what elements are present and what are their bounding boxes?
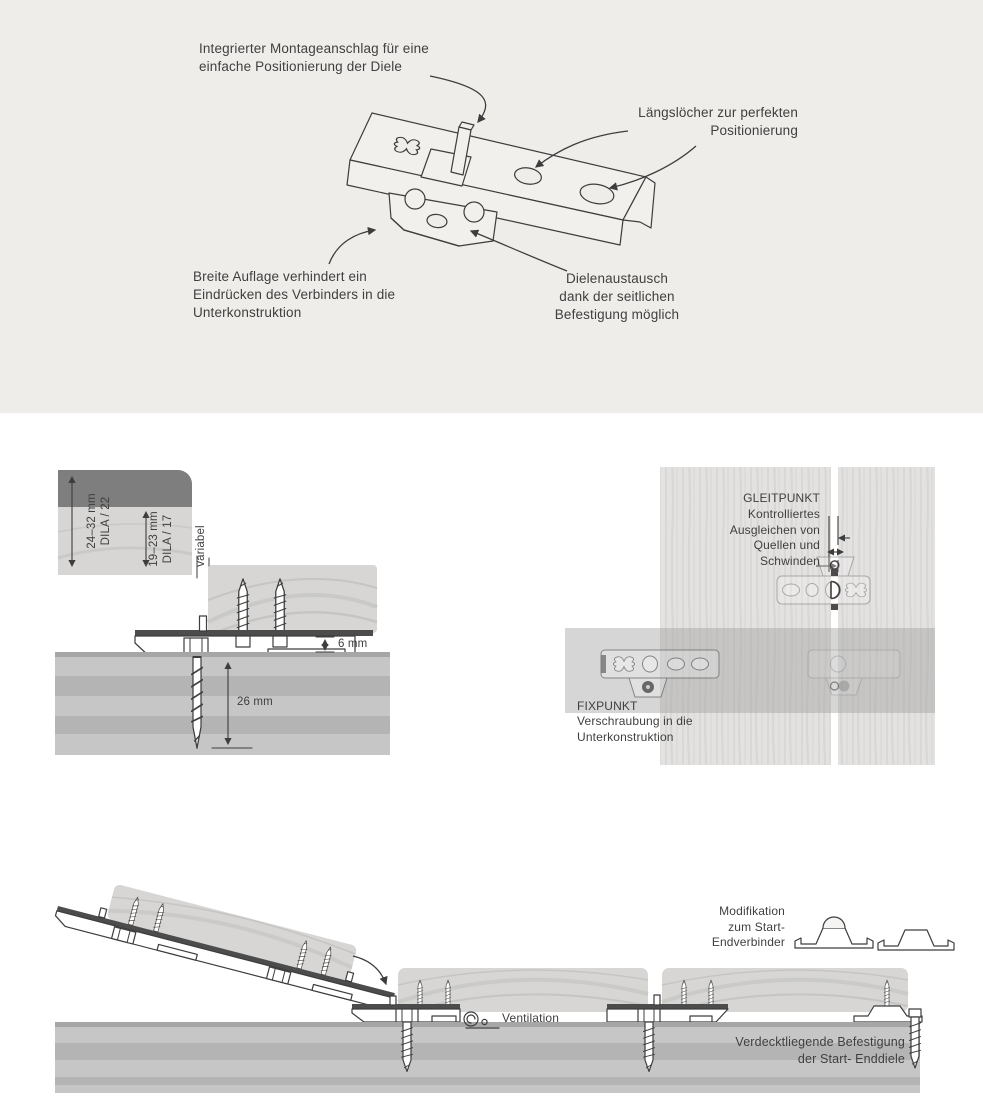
label-ventilation: Ventilation	[502, 1011, 559, 1027]
deck-board-section	[208, 565, 377, 633]
label-gleitpunkt-title: GLEITPUNKT	[640, 491, 820, 507]
tilted-board-assembly	[53, 871, 413, 1013]
stop-pin	[200, 616, 207, 631]
substructure	[55, 652, 390, 755]
board-thickness-block	[58, 470, 209, 592]
label-dielenaustausch: Dielenaustausch dank der seitlichen Befe…	[527, 270, 707, 323]
dimension-label-1: 24–32 mm DILA / 22	[86, 493, 114, 549]
label-variabel: variabel	[195, 525, 209, 566]
label-auflage: Breite Auflage verhindert ein Eindrücken…	[193, 268, 395, 321]
instruction-sheet: Integrierter Montageanschlag für eine ei…	[0, 0, 983, 1110]
profile-with-screw-head	[795, 928, 873, 948]
modification-profiles	[795, 917, 954, 950]
profile-plain	[878, 930, 954, 950]
label-montageanschlag: Integrierter Montageanschlag für eine ei…	[199, 40, 429, 76]
label-verdeckt: Verdecktliegende Befestigung der Start- …	[705, 1034, 905, 1067]
label-langsloecher: Längslöcher zur perfekten Positionierung	[630, 104, 798, 140]
label-fixpunkt-text: Verschraubung in die Unterkonstruktion	[577, 714, 693, 745]
dimension-label-2: 19–23 mm DILA / 17	[148, 511, 176, 567]
rotation-arrow	[353, 956, 386, 984]
label-26mm: 26 mm	[237, 696, 273, 710]
isometric-connector-panel	[0, 0, 983, 413]
label-6mm: 6 mm	[338, 638, 367, 652]
stop-pin	[99, 908, 107, 918]
stop-pin	[390, 996, 396, 1005]
deck-plank-right	[838, 467, 935, 765]
stop-pin	[654, 995, 660, 1005]
label-gleitpunkt-text: Kontrolliertes Ausgleichen von Quellen u…	[640, 507, 820, 569]
label-modifikation: Modifikation zum Start- Endverbinder	[690, 904, 785, 951]
label-fixpunkt-title: FIXPUNKT	[577, 699, 638, 715]
